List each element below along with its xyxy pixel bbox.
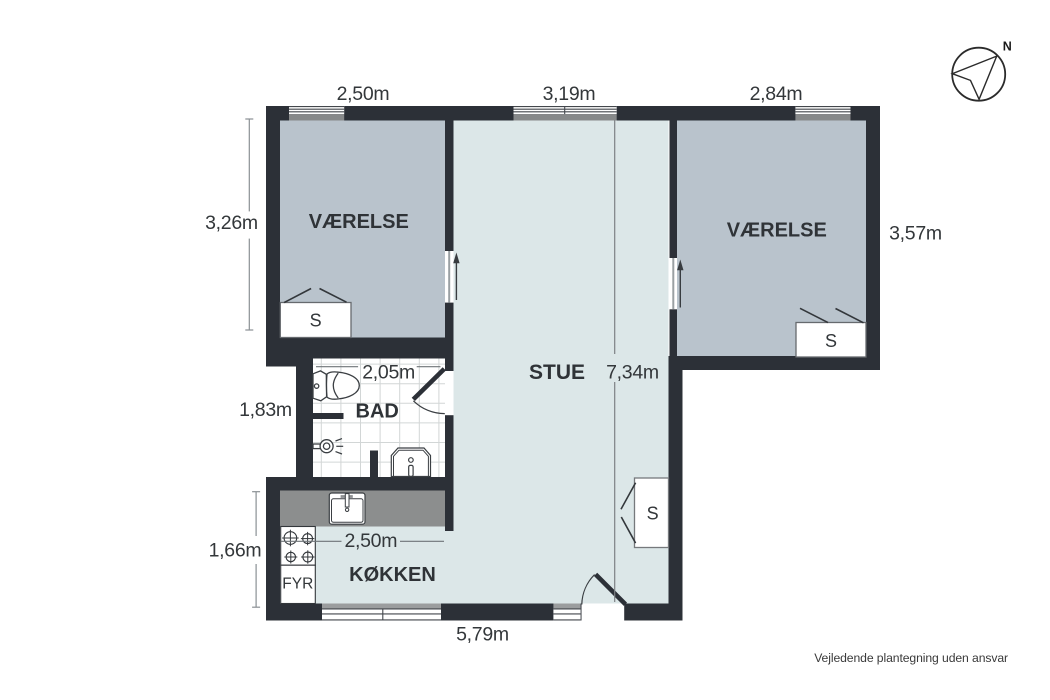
svg-text:2,50m: 2,50m bbox=[344, 530, 397, 552]
svg-text:2,50m: 2,50m bbox=[337, 83, 390, 105]
svg-text:S: S bbox=[310, 311, 322, 331]
svg-text:3,26m: 3,26m bbox=[205, 212, 258, 234]
svg-text:1,66m: 1,66m bbox=[209, 540, 262, 562]
svg-text:2,05m: 2,05m bbox=[362, 362, 415, 384]
svg-text:S: S bbox=[647, 504, 659, 524]
svg-text:3,19m: 3,19m bbox=[543, 83, 596, 105]
svg-text:STUE: STUE bbox=[529, 361, 585, 384]
svg-text:3,57m: 3,57m bbox=[889, 223, 942, 245]
svg-text:S: S bbox=[825, 331, 837, 351]
svg-text:Vejledende plantegning uden an: Vejledende plantegning uden ansvar bbox=[814, 651, 1008, 665]
svg-text:FYR: FYR bbox=[282, 576, 313, 593]
svg-text:2,84m: 2,84m bbox=[750, 83, 803, 105]
svg-text:VÆRELSE: VÆRELSE bbox=[309, 211, 409, 233]
svg-text:1,83m: 1,83m bbox=[239, 399, 292, 421]
svg-text:VÆRELSE: VÆRELSE bbox=[727, 220, 827, 242]
svg-text:BAD: BAD bbox=[356, 401, 399, 423]
svg-text:N: N bbox=[1003, 40, 1012, 54]
svg-text:KØKKEN: KØKKEN bbox=[349, 564, 436, 586]
svg-text:5,79m: 5,79m bbox=[456, 624, 509, 646]
svg-text:7,34m: 7,34m bbox=[606, 362, 659, 384]
